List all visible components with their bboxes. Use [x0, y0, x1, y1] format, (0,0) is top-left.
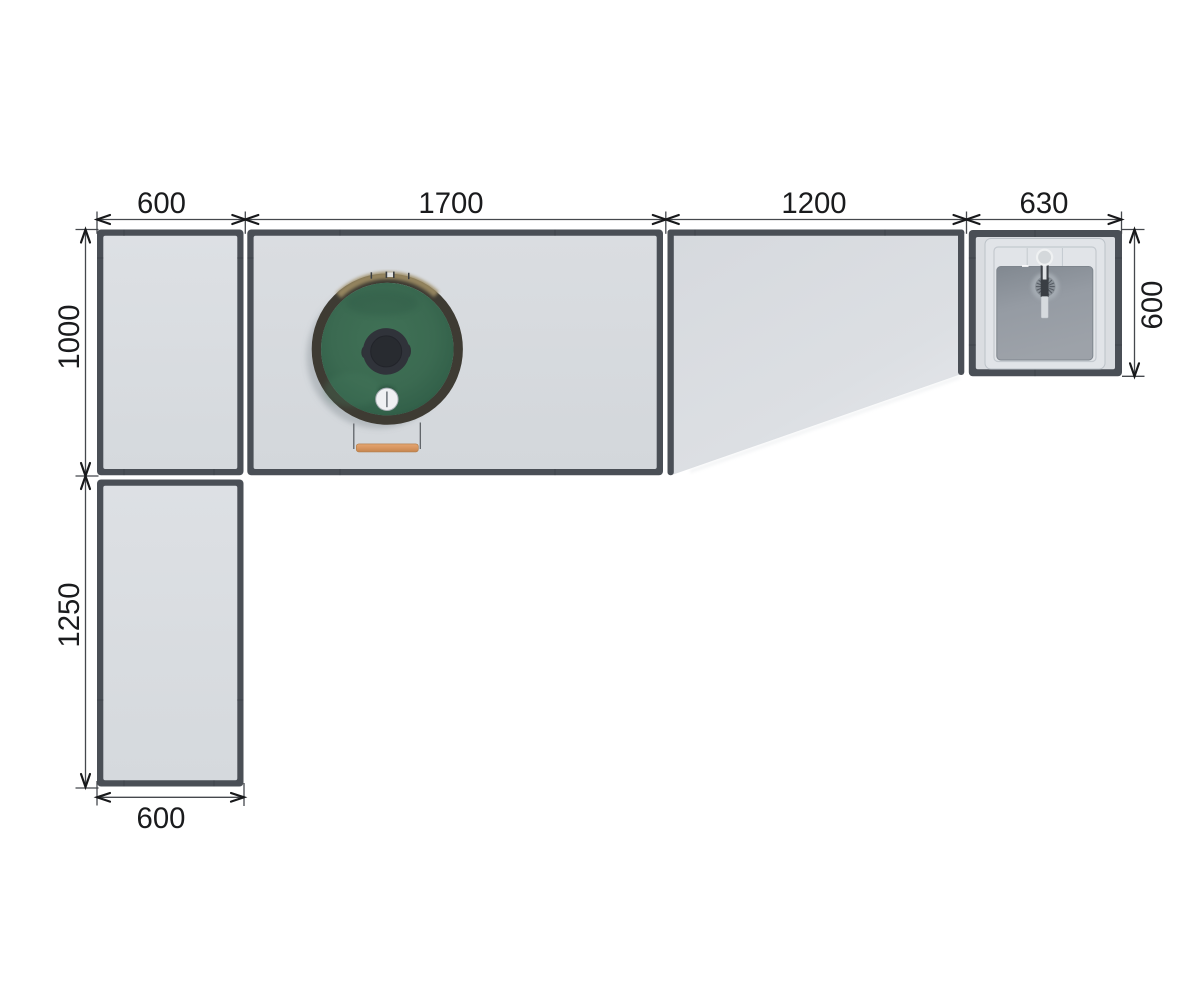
svg-text:600: 600 — [1136, 281, 1169, 330]
svg-text:600: 600 — [137, 187, 186, 220]
svg-text:630: 630 — [1020, 187, 1069, 220]
svg-text:1000: 1000 — [53, 304, 86, 369]
svg-text:1200: 1200 — [781, 187, 846, 220]
svg-text:600: 600 — [137, 802, 186, 835]
svg-text:1250: 1250 — [53, 582, 86, 647]
svg-text:1700: 1700 — [418, 187, 483, 220]
